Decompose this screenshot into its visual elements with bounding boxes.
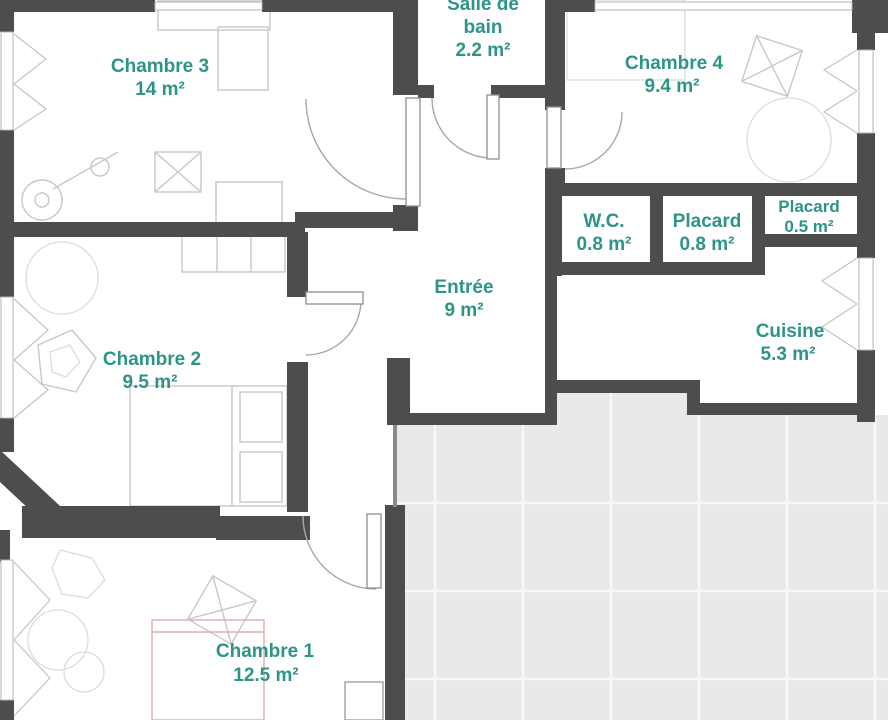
wall-segment bbox=[752, 196, 765, 263]
railing-segment bbox=[393, 425, 397, 507]
wall-segment bbox=[0, 222, 305, 237]
room-label-chambre2-name: Chambre 2 bbox=[103, 349, 201, 370]
chambre1-furniture bbox=[28, 550, 383, 720]
door-chambre4 bbox=[547, 107, 622, 169]
room-label-wc-name: W.C. bbox=[583, 211, 624, 232]
room-label-salle-de-bain-line1: Salle de bbox=[447, 0, 519, 15]
wall-segment bbox=[0, 0, 14, 32]
door-salle-de-bain bbox=[432, 95, 499, 159]
door-leaf-icon bbox=[547, 107, 561, 168]
plant-icon bbox=[52, 550, 105, 598]
wall-segment bbox=[545, 0, 565, 110]
window-icon bbox=[595, 2, 852, 10]
window-icon bbox=[1, 560, 13, 700]
wall-segment bbox=[565, 0, 595, 12]
wall-segment bbox=[0, 418, 14, 452]
room-label-chambre1-name: Chambre 1 bbox=[216, 641, 315, 662]
room-label-cuisine-name: Cuisine bbox=[756, 321, 825, 342]
room-label-placard-grand-area: 0.8 m² bbox=[680, 234, 735, 255]
wall-segment bbox=[545, 270, 557, 385]
room-label-placard-grand-name: Placard bbox=[673, 211, 742, 232]
room-label-placard-petit-name: Placard bbox=[778, 197, 839, 216]
wall-segment bbox=[545, 262, 765, 275]
wall-segment bbox=[216, 516, 310, 540]
door-chambre2 bbox=[306, 292, 363, 355]
wall-segment bbox=[0, 700, 14, 720]
wall-segment bbox=[857, 28, 875, 50]
door-leaf-icon bbox=[367, 514, 381, 588]
wall-segment bbox=[393, 0, 418, 95]
room-label-chambre2-area: 9.5 m² bbox=[123, 372, 178, 393]
wall-segment bbox=[393, 205, 418, 231]
wall-segment bbox=[418, 85, 434, 98]
wall-segment bbox=[262, 0, 395, 12]
radiator-icon bbox=[345, 682, 383, 720]
door-leaf-icon bbox=[406, 98, 420, 206]
room-label-chambre1-area: 12.5 m² bbox=[233, 665, 298, 686]
wall-segment bbox=[287, 232, 308, 297]
floor-plan: Chambre 3 14 m² Salle de bain 2.2 m² Cha… bbox=[0, 0, 888, 720]
room-label-chambre3-name: Chambre 3 bbox=[111, 56, 209, 77]
door-leaf-icon bbox=[487, 95, 499, 159]
window-icon bbox=[859, 50, 873, 133]
wall-segment bbox=[687, 403, 875, 415]
room-label-chambre4-area: 9.4 m² bbox=[645, 76, 700, 97]
wall-segment bbox=[295, 212, 395, 228]
floor-plan-page: Chambre 3 14 m² Salle de bain 2.2 m² Cha… bbox=[0, 0, 888, 720]
room-label-entree-area: 9 m² bbox=[444, 300, 483, 321]
chambre3-furniture bbox=[22, 1, 282, 224]
plant-icon bbox=[26, 242, 98, 314]
wall-segment bbox=[287, 362, 308, 512]
floor-lamp-icon bbox=[22, 180, 62, 220]
tiled-terrace bbox=[397, 390, 888, 720]
room-label-placard-petit-area: 0.5 m² bbox=[784, 217, 833, 236]
bed-icon bbox=[130, 386, 287, 506]
window-icon bbox=[859, 258, 873, 350]
window-icon bbox=[155, 2, 262, 10]
room-label-salle-de-bain-line2: bain bbox=[463, 17, 502, 38]
door-chambre1 bbox=[303, 514, 381, 589]
wall-segment bbox=[557, 183, 875, 196]
door-chambre3 bbox=[306, 98, 420, 206]
room-label-wc-area: 0.8 m² bbox=[577, 234, 632, 255]
wall-segment bbox=[385, 505, 405, 720]
room-label-chambre3-area: 14 m² bbox=[135, 79, 185, 100]
window-icon bbox=[1, 32, 13, 130]
wall-segment bbox=[0, 0, 155, 12]
wall-segment bbox=[0, 130, 14, 297]
wall-segment bbox=[0, 530, 10, 562]
room-label-cuisine-area: 5.3 m² bbox=[761, 344, 816, 365]
wall-segment bbox=[545, 380, 690, 393]
door-leaf-icon bbox=[306, 292, 363, 304]
plant-icon bbox=[747, 98, 831, 182]
room-label-salle-de-bain-area: 2.2 m² bbox=[456, 40, 511, 61]
room-label-entree-name: Entrée bbox=[434, 277, 493, 298]
wall-segment bbox=[395, 413, 547, 425]
room-label-chambre4-name: Chambre 4 bbox=[625, 53, 724, 74]
window-icon bbox=[1, 297, 13, 418]
